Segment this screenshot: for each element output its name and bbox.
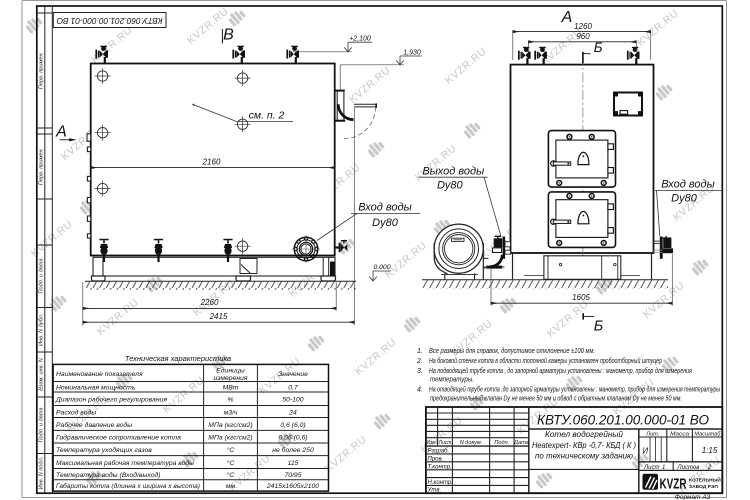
svg-text:Масса: Масса <box>670 432 689 438</box>
svg-text:Формат А3: Формат А3 <box>675 494 711 500</box>
svg-text:Б: Б <box>594 319 603 335</box>
svg-text:2: 2 <box>707 465 712 471</box>
svg-text:1.: 1. <box>417 348 423 355</box>
svg-text:960: 960 <box>576 32 590 41</box>
svg-text:Выход воды: Выход воды <box>422 165 484 177</box>
svg-text:ЗАВОД РЭП: ЗАВОД РЭП <box>689 484 718 490</box>
svg-text:3.: 3. <box>417 368 423 375</box>
svg-text:Диапазон рабочего регулировани: Диапазон рабочего регулирования <box>55 396 167 404</box>
svg-text:Листов: Листов <box>677 465 700 471</box>
svg-text:Дата: Дата <box>513 440 529 446</box>
svg-text:4.: 4. <box>417 387 423 394</box>
svg-text:Техническая характеристика: Техническая характеристика <box>125 354 231 363</box>
svg-text:КВТУ.060.201.00.000-01 ВО: КВТУ.060.201.00.000-01 ВО <box>537 412 709 428</box>
svg-text:Вход воды: Вход воды <box>661 178 714 190</box>
svg-text:Инв. N подл.: Инв. N подл. <box>38 457 44 490</box>
svg-text:А: А <box>561 9 573 26</box>
svg-text:Н.контр.: Н.контр. <box>428 480 453 486</box>
svg-text:2260: 2260 <box>200 298 219 307</box>
svg-text:+2,100: +2,100 <box>349 36 371 43</box>
svg-text:Котел водогрейный: Котел водогрейный <box>545 429 623 439</box>
svg-text:Разраб.: Разраб. <box>428 449 450 455</box>
svg-text:Перв. примен.: Перв. примен. <box>38 52 44 89</box>
svg-text:2160: 2160 <box>202 158 221 167</box>
svg-text:N докум.: N докум. <box>460 440 483 446</box>
svg-text:115: 115 <box>288 460 299 467</box>
svg-text:КВТУ.060.201.00.000-01 ВО: КВТУ.060.201.00.000-01 ВО <box>56 16 163 25</box>
svg-text:Температура уходящих газов: Температура уходящих газов <box>56 446 152 454</box>
svg-text:Наименование показателя: Наименование показателя <box>56 371 143 378</box>
svg-text:Подп. и дата: Подп. и дата <box>38 407 44 442</box>
svg-text:измерения: измерения <box>213 375 247 382</box>
svg-text:Габариты котла (длинна х ширин: Габариты котла (длинна х ширина х высота… <box>56 482 200 490</box>
svg-text:Лист: Лист <box>438 440 452 446</box>
svg-text:На подводящей трубе котла ,: На подводящей трубе котла , до запорной … <box>429 367 692 375</box>
svg-text:Единицы: Единицы <box>216 367 244 375</box>
svg-text:°С: °С <box>227 446 235 454</box>
svg-text:Вход воды: Вход воды <box>358 201 411 213</box>
svg-text:0,06 (0,6): 0,06 (0,6) <box>278 435 307 442</box>
svg-text:А: А <box>55 124 67 141</box>
svg-text:Перв. примен.: Перв. примен. <box>38 148 44 185</box>
svg-text:Гидравлическое сопротивление к: Гидравлическое сопротивление котла <box>56 434 181 442</box>
svg-text:24: 24 <box>288 409 297 416</box>
svg-text:Все размеры для справок, допус: Все размеры для справок, допустимое откл… <box>429 347 595 355</box>
svg-text:Т.контр.: Т.контр. <box>428 464 452 470</box>
svg-text:МПа (кгс/см2): МПа (кгс/см2) <box>208 422 252 429</box>
svg-text:0,6 (6,0): 0,6 (6,0) <box>280 422 305 429</box>
svg-text:Лист: Лист <box>643 465 659 471</box>
svg-text:В: В <box>223 27 234 44</box>
svg-text:Расход воды: Расход воды <box>56 408 96 416</box>
svg-text:см. п. 2: см. п. 2 <box>249 110 285 122</box>
svg-text:м3/ч: м3/ч <box>224 409 238 416</box>
svg-text:2415: 2415 <box>209 312 228 321</box>
svg-text:И: И <box>642 446 648 455</box>
svg-text:1260: 1260 <box>574 22 592 31</box>
svg-text:Температура воды (Вход/выход): Температура воды (Вход/выход) <box>56 471 161 479</box>
svg-text:Изм.: Изм. <box>426 440 437 446</box>
svg-text:Подп.: Подп. <box>494 440 509 446</box>
svg-text:Подп. и дата: Подп. и дата <box>38 258 44 293</box>
svg-text:Лит.: Лит. <box>645 432 659 438</box>
svg-text:не более 250: не более 250 <box>272 446 314 454</box>
svg-text:Номинальная мощность: Номинальная мощность <box>56 384 136 391</box>
svg-text:°С: °С <box>227 459 235 467</box>
svg-text:Рабочее давление воды: Рабочее давление воды <box>56 421 132 429</box>
svg-text:МВт: МВт <box>223 384 239 391</box>
svg-text:1,930: 1,930 <box>403 49 421 56</box>
svg-text:%: % <box>227 397 233 404</box>
svg-text:предохранительный клапан Dy н: предохранительный клапан Dy не менее 50 … <box>430 395 682 403</box>
svg-text:0,7: 0,7 <box>288 384 298 391</box>
svg-text:70/95: 70/95 <box>284 472 301 479</box>
svg-text:2415х1605х2100: 2415х1605х2100 <box>266 483 319 490</box>
svg-text:KVZR: KVZR <box>660 477 687 493</box>
svg-text:1:15: 1:15 <box>702 446 718 455</box>
svg-text:Максимальная рабочая температу: Максимальная рабочая температура воды <box>56 459 194 467</box>
svg-text:МПа (кгс/см2): МПа (кгс/см2) <box>208 435 252 442</box>
svg-text:На отводящей трубе котла ,до з: На отводящей трубе котла ,до запорной ар… <box>429 386 723 394</box>
svg-text:Масштаб: Масштаб <box>694 432 721 438</box>
svg-text:Б: Б <box>594 40 603 55</box>
svg-text:1605: 1605 <box>572 293 590 302</box>
svg-text:°С: °С <box>227 471 235 479</box>
svg-text:Dy80: Dy80 <box>671 192 698 204</box>
svg-text:Dy80: Dy80 <box>437 179 464 191</box>
svg-text:Dy80: Dy80 <box>372 217 399 229</box>
svg-text:Пров.: Пров. <box>428 456 444 462</box>
svg-text:по техническому заданию: по техническому заданию <box>535 450 634 460</box>
svg-text:50-100: 50-100 <box>282 397 303 404</box>
svg-text:Взам. инв. N: Взам. инв. N <box>38 357 44 391</box>
svg-text:мм: мм <box>226 483 236 490</box>
svg-text:температуры.: температуры. <box>430 377 474 384</box>
svg-text:На боковой стенке котла в обла: На боковой стенке котла в области топочн… <box>429 357 662 365</box>
svg-text:1: 1 <box>662 465 665 471</box>
svg-text:2.: 2. <box>416 358 423 365</box>
svg-text:Инв. N дубл.: Инв. N дубл. <box>38 314 44 346</box>
svg-text:Heatexpert- КВр -0,7- КБД ( К: Heatexpert- КВр -0,7- КБД ( К ) <box>532 440 636 450</box>
svg-text:Значение: Значение <box>278 371 308 378</box>
svg-text:0.000: 0.000 <box>373 264 390 271</box>
svg-text:Утв.: Утв. <box>427 488 442 494</box>
